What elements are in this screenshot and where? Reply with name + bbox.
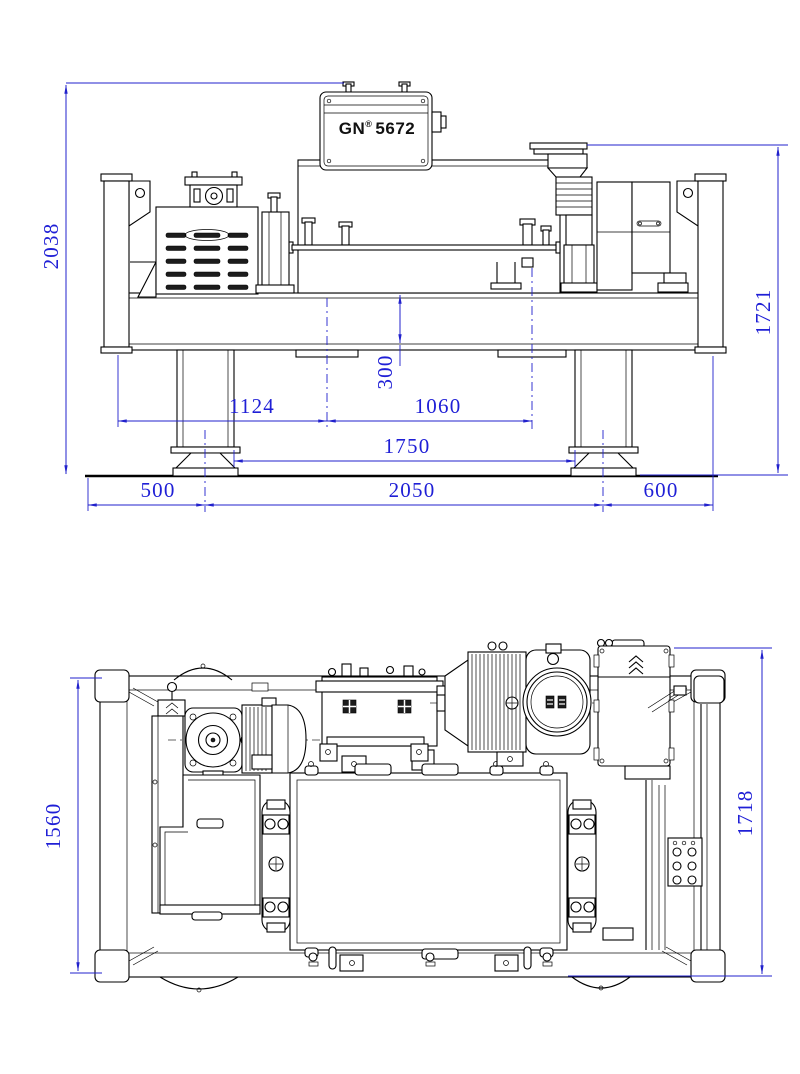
gear-guard-box: [130, 207, 258, 297]
skid-frame-beam: [120, 293, 715, 350]
plan-view: 1560 1718: [41, 640, 772, 993]
dim-600-value: 600: [643, 478, 678, 502]
plan-left-motor: [168, 698, 320, 782]
dim-2038-value: 2038: [39, 223, 63, 270]
dim-1560-value: 1560: [41, 803, 65, 850]
dimension-left-overhang-500: 500: [88, 478, 205, 511]
foot-bottom-left: [160, 977, 238, 989]
dim-1060-value: 1060: [415, 394, 462, 418]
back-drive-motor: [597, 182, 688, 292]
side-elevation-view: GN®5672: [39, 82, 788, 512]
bearing-support: [256, 193, 294, 293]
bowl-casing: [298, 160, 560, 293]
dim-1721-value: 1721: [751, 289, 775, 336]
dimension-1060: 1060: [327, 394, 532, 421]
plan-right-isolator: [568, 800, 596, 932]
plan-control-box: [316, 664, 446, 761]
plan-left-isolator: [262, 800, 290, 932]
corner-block: [95, 950, 129, 982]
corner-block: [691, 950, 725, 982]
dim-1718-value: 1718: [733, 790, 757, 837]
dimension-leg-clearance-1750: 1750: [234, 434, 575, 467]
machine-model-label: GN®5672: [339, 119, 415, 138]
right-support-leg: [569, 350, 638, 476]
corner-block: [95, 670, 129, 702]
plan-bowl-casing-cover: [252, 750, 567, 959]
brand-text: GN: [339, 119, 366, 138]
decanter-centrifuge-drawing: GN®5672: [0, 0, 800, 1074]
engineering-drawing-page: GN®5672: [0, 0, 800, 1074]
registered-mark: ®: [365, 119, 372, 129]
dimension-frame-width-1560: 1560: [41, 678, 102, 973]
dim-1750-value: 1750: [384, 434, 431, 458]
dim-1124-value: 1124: [229, 394, 275, 418]
dim-500-value: 500: [140, 478, 175, 502]
dim-2050-value: 2050: [389, 478, 436, 502]
dim-300-value: 300: [373, 354, 397, 389]
dimension-leg-span-2050: 2050: [205, 478, 603, 505]
main-bearing-pedestal: [185, 172, 242, 207]
model-number-text: 5672: [375, 119, 415, 138]
plan-electrical-cabinet: [594, 640, 674, 780]
side-bracket: [694, 676, 724, 703]
control-box: GN®5672: [320, 82, 446, 170]
